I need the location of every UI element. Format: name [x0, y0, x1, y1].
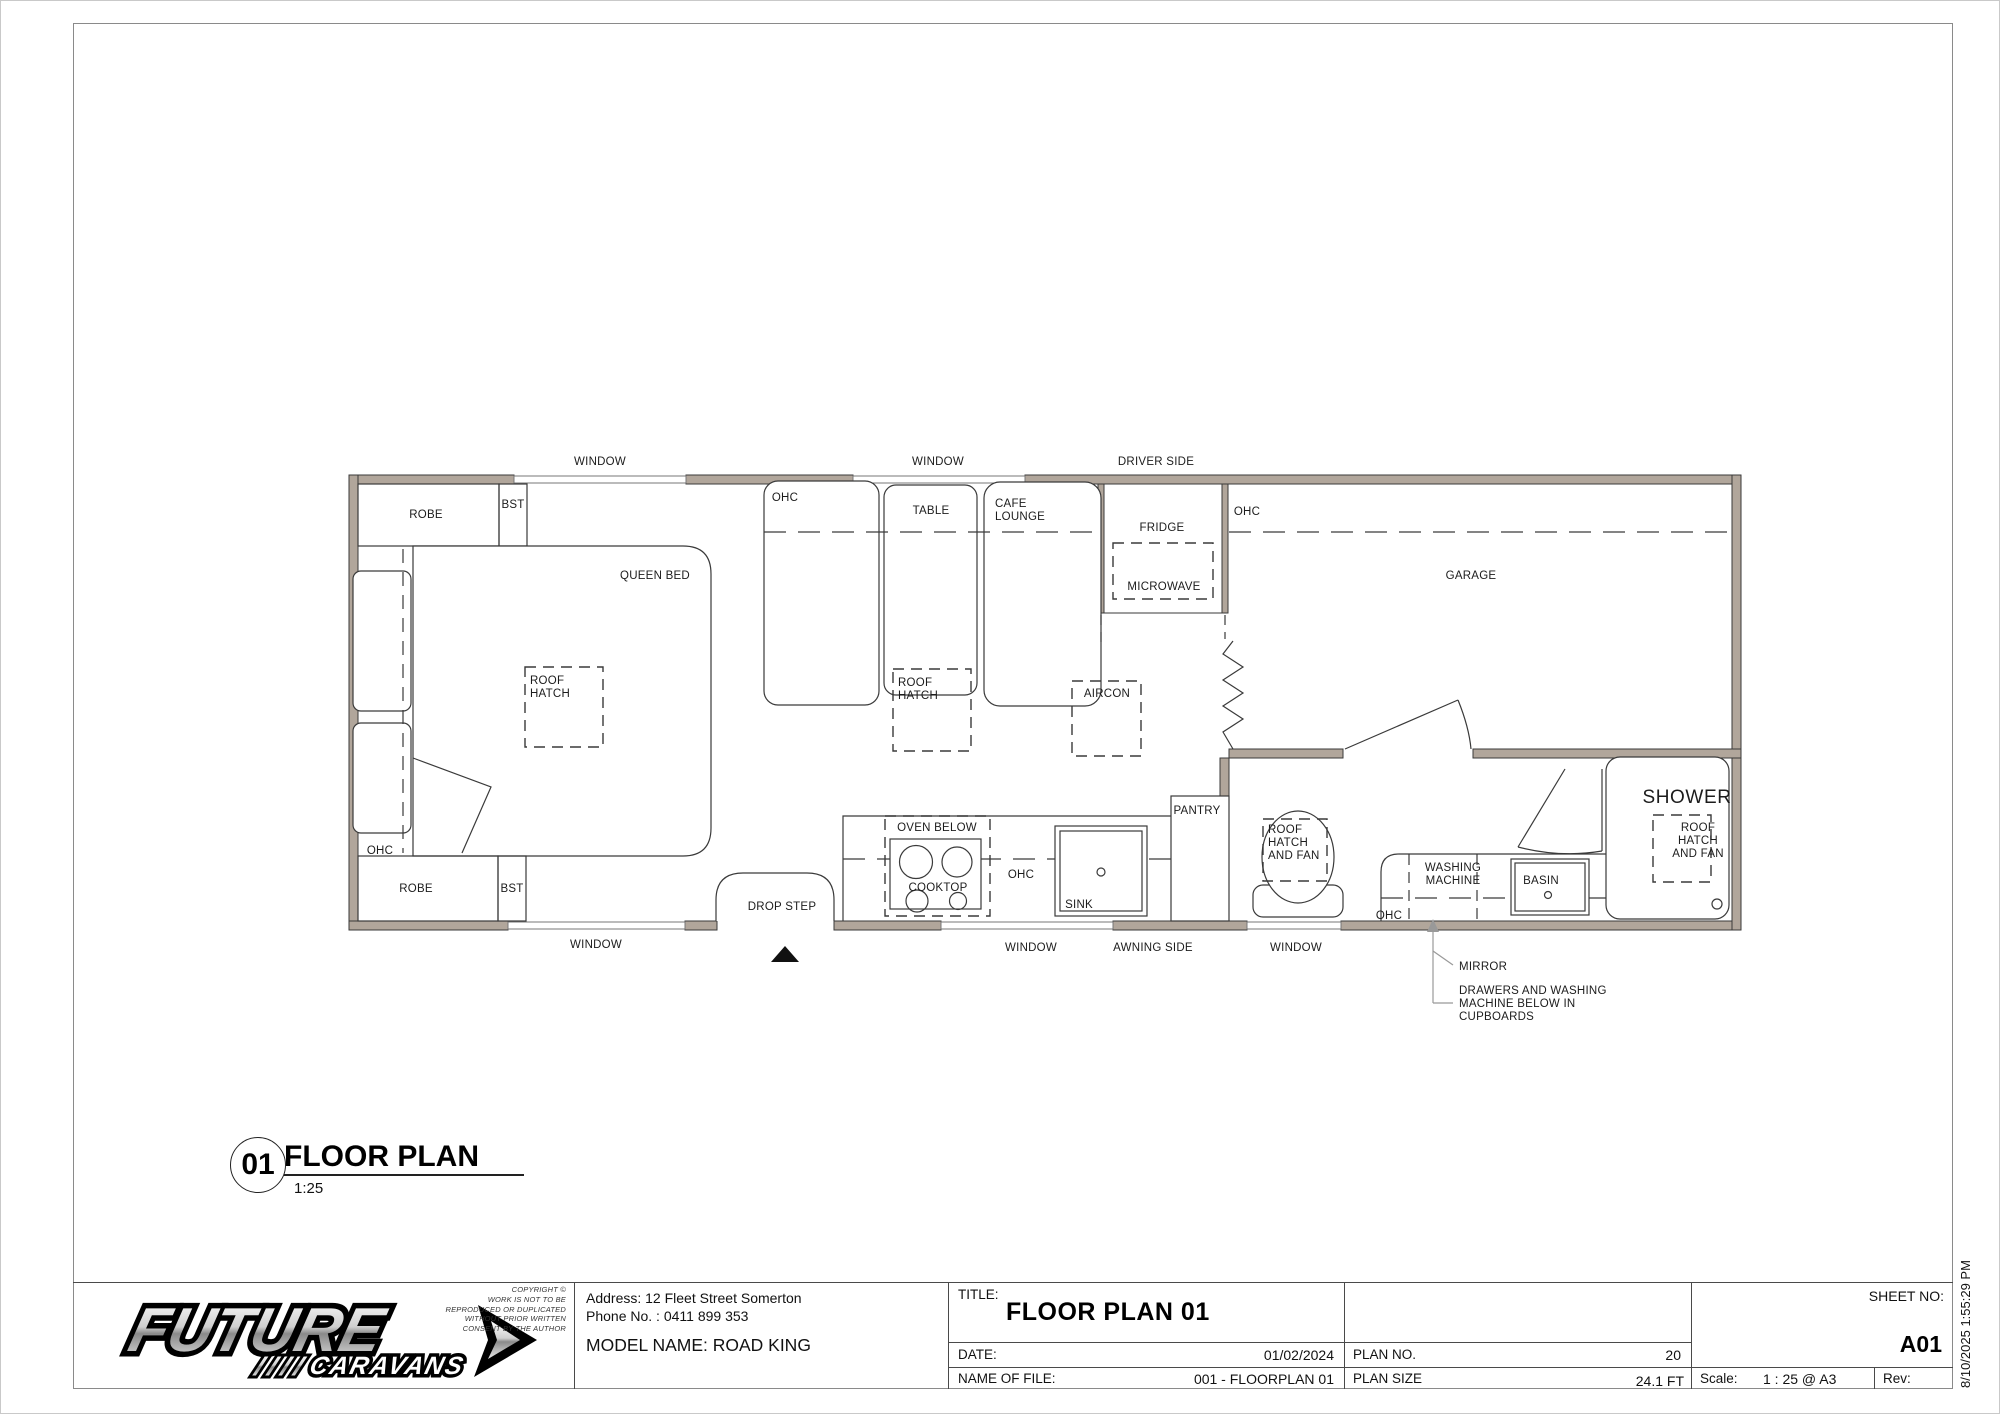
scale-value: 1 : 25 @ A3 — [1763, 1371, 1836, 1387]
title-underline — [284, 1174, 524, 1176]
copyright-note: COPYRIGHT © WORK IS NOT TO BE REPRODUCED… — [361, 1285, 566, 1334]
print-timestamp: 8/10/2025 1:55:29 PM — [1958, 1260, 1973, 1388]
titleblock-divider-rev — [1874, 1367, 1875, 1389]
label-cafe-lounge: CAFE LOUNGE — [995, 498, 1059, 524]
label-awning-side: AWNING SIDE — [1113, 942, 1193, 954]
label-bst-top: BST — [501, 499, 524, 511]
titleblock-divider-2 — [948, 1282, 949, 1389]
label-fridge: FRIDGE — [1140, 522, 1185, 534]
leader-lines — [1427, 919, 1453, 1003]
label-ohc-bathroom: OHC — [1376, 910, 1402, 922]
title-scale: 1:25 — [294, 1180, 323, 1197]
titleblock-divider-4 — [1691, 1282, 1692, 1389]
logo-sub-text: CARAVANS — [307, 1352, 468, 1380]
entry-arrow-marker — [771, 946, 799, 962]
sheet-no-label: SHEET NO: — [1794, 1288, 1944, 1304]
label-window-bottom-2: WINDOW — [1005, 942, 1057, 954]
lounge-furniture — [764, 481, 1728, 756]
label-cooktop: COOKTOP — [908, 882, 967, 894]
plan-size-value: 24.1 FT — [1501, 1373, 1684, 1389]
plan-size-label: PLAN SIZE — [1353, 1371, 1422, 1386]
date-value: 01/02/2024 — [1151, 1347, 1334, 1363]
label-garage: GARAGE — [1446, 570, 1497, 582]
label-drawers-note: DRAWERS AND WASHING MACHINE BELOW IN CUP… — [1459, 985, 1624, 1024]
label-roof-hatch-fan-shower: ROOF HATCH AND FAN — [1667, 822, 1729, 861]
address-line: Address: 12 Fleet Street Somerton — [586, 1290, 802, 1306]
label-robe-top: ROBE — [409, 509, 443, 521]
label-ohc-kitchen: OHC — [1008, 869, 1034, 881]
label-queen-bed: QUEEN BED — [620, 570, 690, 582]
scale-label: Scale: — [1700, 1371, 1738, 1386]
plan-no-label: PLAN NO. — [1353, 1347, 1416, 1362]
wall-break-zigzag — [1223, 641, 1243, 749]
rev-label: Rev: — [1883, 1371, 1911, 1386]
label-microwave: MICROWAVE — [1127, 581, 1200, 593]
bedroom-furniture — [353, 484, 711, 921]
label-roof-hatch-bed: ROOF HATCH — [530, 675, 582, 701]
titleblock-row-line-2 — [948, 1367, 1953, 1368]
label-ohc-bed: OHC — [772, 492, 798, 504]
kitchen — [843, 796, 1229, 921]
label-washing-machine: WASHING MACHINE — [1407, 862, 1499, 888]
plan-no-value: 20 — [1501, 1347, 1681, 1363]
drawing-sheet: WINDOW WINDOW DRIVER SIDE ROBE BST QUEEN… — [0, 0, 2000, 1414]
titleblock-divider-3 — [1344, 1282, 1345, 1389]
detail-number: 01 — [241, 1148, 274, 1182]
file-label: NAME OF FILE: — [958, 1371, 1056, 1386]
label-window-top-2: WINDOW — [912, 456, 964, 468]
label-driver-side: DRIVER SIDE — [1118, 456, 1194, 468]
phone-line: Phone No. : 0411 899 353 — [586, 1308, 748, 1324]
label-pantry: PANTRY — [1173, 805, 1220, 817]
floor-plan-drawing — [1, 1, 2000, 1414]
label-window-top-1: WINDOW — [574, 456, 626, 468]
sheet-no-value: A01 — [1792, 1331, 1942, 1358]
label-roof-hatch-lounge: ROOF HATCH — [898, 677, 950, 703]
titleblock-divider-1 — [574, 1282, 575, 1389]
drop-step — [716, 873, 834, 962]
label-drop-step: DROP STEP — [748, 901, 817, 913]
page-title: FLOOR PLAN — [284, 1140, 479, 1174]
label-sink: SINK — [1065, 899, 1093, 911]
label-shower: SHOWER — [1642, 787, 1731, 809]
label-window-bottom-3: WINDOW — [1270, 942, 1322, 954]
label-ohc-bedroom-left: OHC — [367, 845, 393, 857]
titleblock-row-line-1 — [948, 1342, 1691, 1343]
label-aircon: AIRCON — [1084, 688, 1130, 700]
label-bst-bottom: BST — [500, 883, 523, 895]
label-ohc-garage: OHC — [1234, 506, 1260, 518]
title-label: TITLE: — [958, 1287, 999, 1302]
title-value: FLOOR PLAN 01 — [1006, 1298, 1210, 1327]
label-robe-bottom: ROBE — [399, 883, 433, 895]
label-roof-hatch-fan-toilet: ROOF HATCH AND FAN — [1268, 824, 1326, 863]
label-oven-below: OVEN BELOW — [897, 822, 977, 834]
titleblock-top-line — [73, 1282, 1953, 1283]
label-mirror: MIRROR — [1459, 961, 1507, 973]
label-table: TABLE — [913, 505, 950, 517]
label-basin: BASIN — [1523, 875, 1559, 887]
date-label: DATE: — [958, 1347, 997, 1362]
detail-number-circle: 01 — [230, 1137, 286, 1193]
file-value: 001 - FLOORPLAN 01 — [1101, 1371, 1334, 1387]
model-name: MODEL NAME: ROAD KING — [586, 1335, 811, 1356]
garage-door — [1345, 700, 1471, 749]
label-window-bottom-1: WINDOW — [570, 939, 622, 951]
